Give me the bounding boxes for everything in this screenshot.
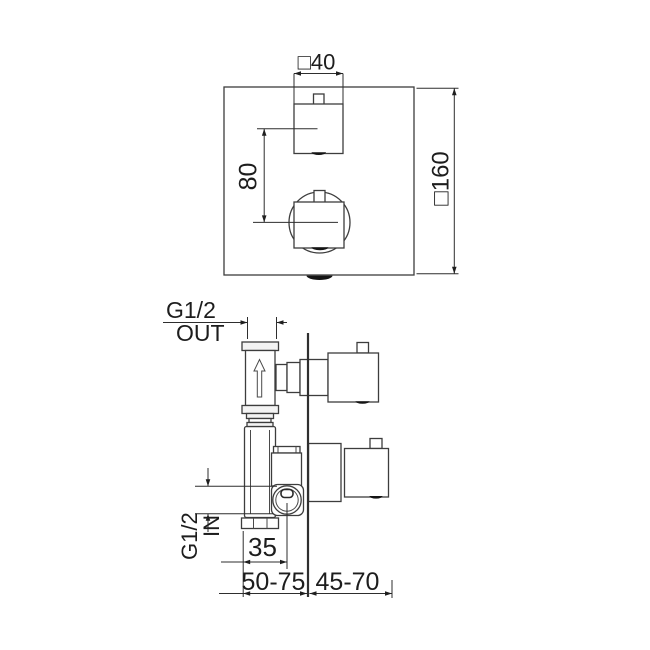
upper-handle-side bbox=[276, 343, 379, 404]
arrowhead bbox=[336, 71, 343, 76]
arrowhead bbox=[452, 267, 457, 274]
cartridge-body bbox=[272, 453, 302, 486]
upper-handle-tab-side bbox=[357, 343, 369, 354]
dimension-drawing-svg: □40 □160 80 bbox=[0, 0, 650, 650]
plate-size-label: □160 bbox=[428, 151, 455, 206]
handle-width-label: □40 bbox=[298, 50, 336, 75]
handle-spacer bbox=[309, 444, 342, 502]
lower-handle-side bbox=[309, 439, 389, 502]
plate-bottom-mark bbox=[307, 276, 333, 280]
outlet-port-label: OUT bbox=[176, 320, 225, 346]
depth-front-wall-label: 45-70 bbox=[316, 568, 380, 596]
thermostat-knob-square bbox=[294, 202, 344, 248]
arrowhead bbox=[280, 560, 287, 565]
outlet-top-flange bbox=[242, 342, 279, 351]
inlet-bottom-flange bbox=[242, 518, 279, 529]
valve-stub bbox=[276, 365, 287, 391]
lower-handle-tab-side bbox=[370, 439, 382, 449]
thread-ring bbox=[247, 414, 274, 419]
upper-handle-side-body bbox=[328, 353, 379, 402]
dim-outlet-thread: G1/2 OUT bbox=[163, 297, 287, 346]
dim-depth-behind-wall: 50-75 bbox=[219, 568, 307, 596]
arrowhead bbox=[385, 591, 392, 596]
thread-ring bbox=[247, 423, 273, 427]
lower-handle-side-body bbox=[345, 449, 389, 498]
inlet-port-label: IN bbox=[199, 515, 224, 537]
outlet-valve bbox=[242, 342, 279, 427]
handle-stem bbox=[300, 360, 328, 396]
arrowhead bbox=[241, 320, 248, 325]
side-view: G1/2 OUT G1/2 IN 35 bbox=[163, 297, 392, 598]
arrowhead bbox=[206, 479, 211, 486]
dim-plate-size: □160 bbox=[417, 88, 459, 273]
thermostat-knob-tab bbox=[314, 191, 325, 203]
lower-handle-mark bbox=[370, 496, 383, 499]
outlet-bottom-flange bbox=[242, 406, 279, 414]
handle-spacing-label: 80 bbox=[235, 163, 263, 191]
technical-drawing-page: □40 □160 80 bbox=[0, 0, 650, 650]
dim-depth-front-wall: 45-70 bbox=[310, 568, 393, 598]
upper-handle-mark bbox=[356, 401, 370, 404]
valve-stub bbox=[287, 363, 300, 393]
upper-handle-tab bbox=[314, 94, 325, 105]
inlet-offset-label: 35 bbox=[248, 532, 277, 562]
arrowhead bbox=[452, 88, 457, 95]
depth-behind-wall-label: 50-75 bbox=[242, 568, 306, 596]
front-view: □40 □160 80 bbox=[224, 50, 459, 281]
arrowhead bbox=[277, 320, 284, 325]
